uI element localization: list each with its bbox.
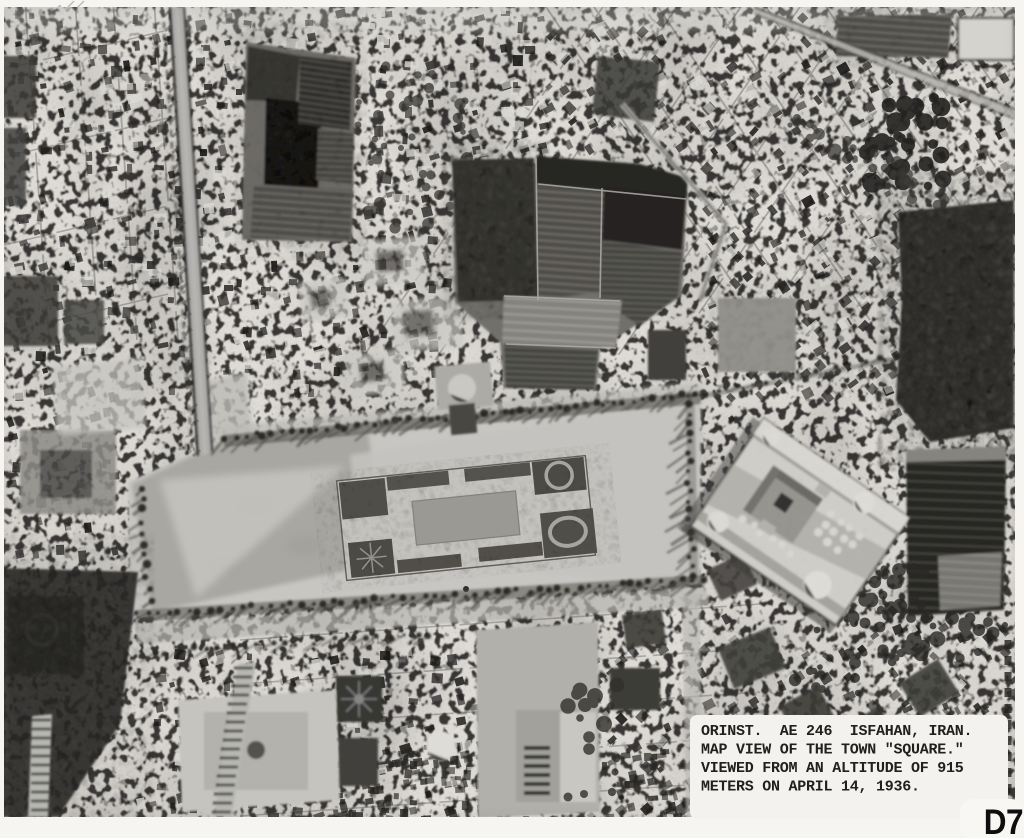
svg-text:VIEWED FROM AN ALTITUDE OF 915: VIEWED FROM AN ALTITUDE OF 915 <box>701 760 964 777</box>
svg-text:METERS ON APRIL 14, 1936.: METERS ON APRIL 14, 1936. <box>701 779 920 796</box>
svg-text:MAP VIEW OF THE TOWN "SQUARE.": MAP VIEW OF THE TOWN "SQUARE." <box>701 742 964 759</box>
svg-text:ORINST. AE 246 ISFAHAN, IRAN: ORINST. AE 246 ISFAHAN, IRAN. <box>701 723 972 740</box>
svg-text:D7: D7 <box>984 804 1023 838</box>
